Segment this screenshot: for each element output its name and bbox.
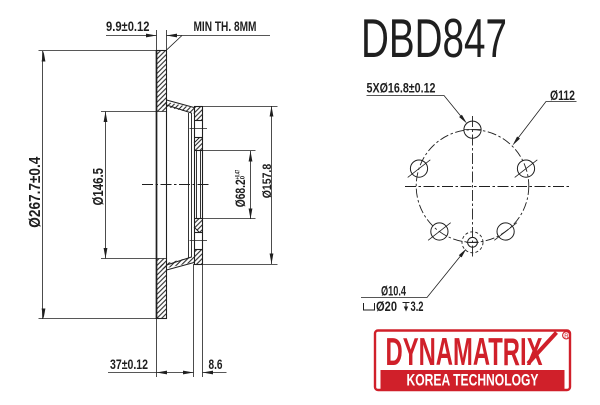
svg-text:Ø10.4: Ø10.4 <box>381 283 406 299</box>
svg-text:8.6: 8.6 <box>209 356 223 372</box>
svg-text:R: R <box>564 334 569 340</box>
svg-text:Ø68.2: Ø68.2 <box>232 179 248 207</box>
svg-text:KOREA TECHNOLOGY: KOREA TECHNOLOGY <box>407 372 539 390</box>
svg-text:3.2: 3.2 <box>411 298 424 314</box>
svg-text:Ø267.7±0.4: Ø267.7±0.4 <box>27 156 44 227</box>
svg-text:Ø146.5: Ø146.5 <box>91 168 107 206</box>
svg-text:Ø112: Ø112 <box>550 87 575 103</box>
svg-text:Ø157.8: Ø157.8 <box>261 163 274 198</box>
svg-text:DYNAMATRIX: DYNAMATRIX <box>386 331 543 374</box>
svg-text:37±0.12: 37±0.12 <box>110 356 148 372</box>
svg-text:DBD847: DBD847 <box>361 8 507 69</box>
svg-text:5XØ16.8±0.12: 5XØ16.8±0.12 <box>367 80 436 96</box>
svg-text:9.9±0.12: 9.9±0.12 <box>106 18 150 34</box>
svg-text:MIN TH. 8MM: MIN TH. 8MM <box>194 18 257 34</box>
svg-text:Ø20: Ø20 <box>376 298 397 314</box>
